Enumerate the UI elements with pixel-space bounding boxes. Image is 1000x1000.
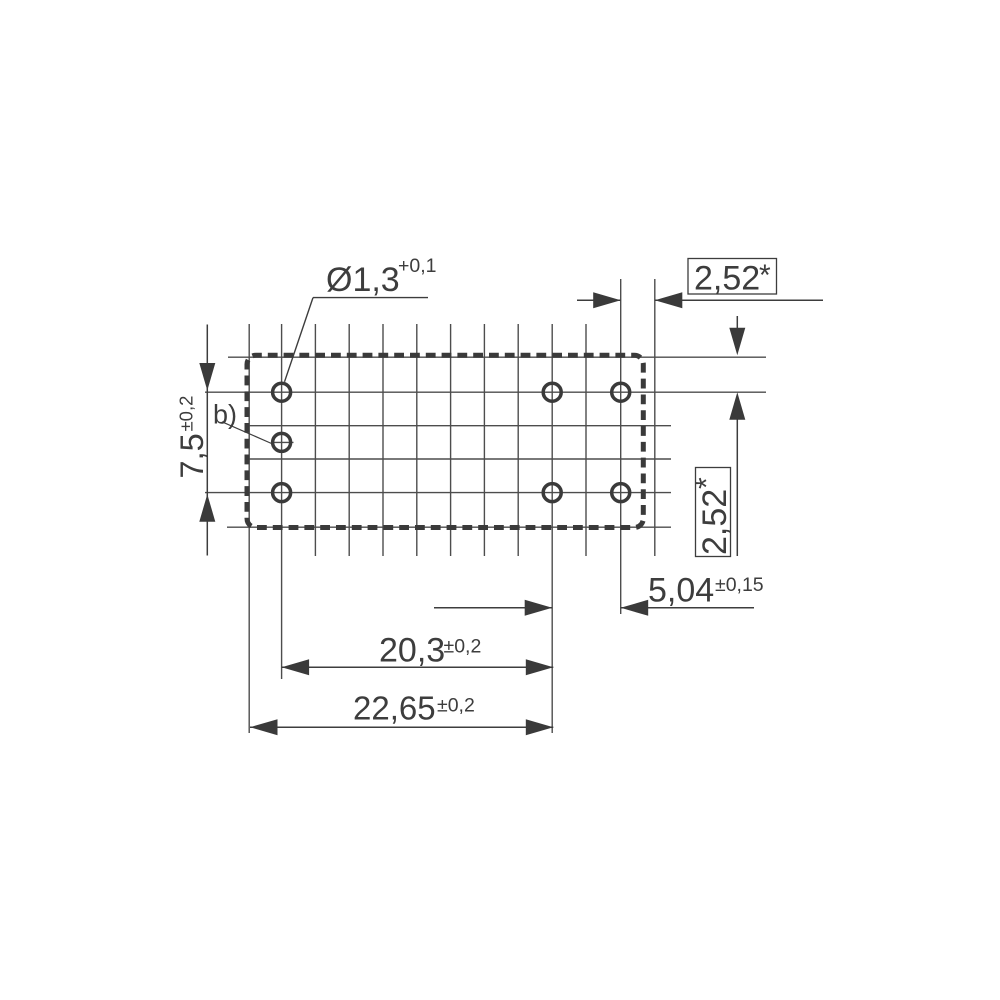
svg-text:Ø1,3: Ø1,3 xyxy=(326,261,400,299)
svg-text:±0,2: ±0,2 xyxy=(176,396,197,432)
svg-text:±0,2: ±0,2 xyxy=(437,695,475,717)
svg-text:2,52: 2,52 xyxy=(694,260,760,298)
svg-text:22,65: 22,65 xyxy=(353,690,436,727)
svg-text:5,04: 5,04 xyxy=(648,572,714,610)
svg-text:b): b) xyxy=(213,400,237,430)
svg-text:2,52: 2,52 xyxy=(696,489,734,555)
svg-text:*: * xyxy=(759,259,771,292)
svg-text:*: * xyxy=(691,477,724,489)
svg-text:+0,1: +0,1 xyxy=(398,255,437,277)
svg-text:20,3: 20,3 xyxy=(379,632,445,670)
svg-text:7,5: 7,5 xyxy=(174,433,210,478)
svg-text:±0,2: ±0,2 xyxy=(444,636,482,658)
svg-text:±0,15: ±0,15 xyxy=(715,574,764,596)
